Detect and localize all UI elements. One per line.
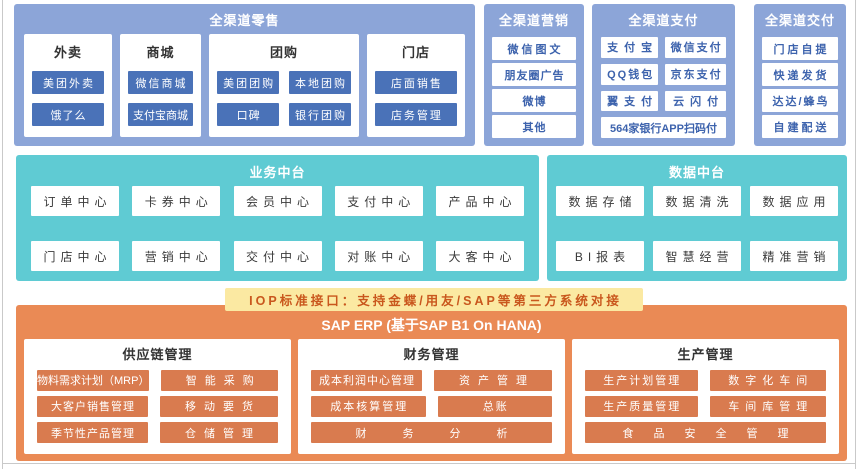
retail-column-takeout: 外卖 美团外卖 饿了么 xyxy=(24,34,112,137)
chip-key-account-sales: 大客户销售管理 xyxy=(37,396,148,417)
chip-koubei: 口碑 xyxy=(217,103,279,126)
chip-bank-groupbuy: 银行团购 xyxy=(289,103,351,126)
chip-weibo: 微博 xyxy=(492,89,576,112)
omnichannel-marketing-title: 全渠道营销 xyxy=(492,10,576,34)
chip-order-center: 订单中心 xyxy=(31,186,119,216)
omnichannel-delivery-title: 全渠道交付 xyxy=(762,10,838,34)
delivery-chips: 门店自提 快递发货 达达/蜂鸟 自建配送 xyxy=(762,37,838,138)
chip-cost-accounting: 成本核算管理 xyxy=(311,396,426,417)
data-platform-title: 数据中台 xyxy=(556,162,838,186)
chip-product-center: 产品中心 xyxy=(436,186,524,216)
groupbuy-chip-grid: 美团团购 本地团购 口碑 银行团购 xyxy=(217,71,351,126)
chip-marketing-center: 营销中心 xyxy=(132,241,220,271)
chip-express-shipping: 快递发货 xyxy=(762,63,838,86)
chip-precision-marketing: 精准营销 xyxy=(750,241,838,271)
chip-wechat-posts: 微信图文 xyxy=(492,37,576,60)
mall-title: 商城 xyxy=(147,42,175,61)
chip-alipay: 支付宝 xyxy=(601,37,658,58)
production-title: 生产管理 xyxy=(585,343,826,367)
chip-reconciliation-center: 对账中心 xyxy=(335,241,423,271)
supply-chain-row-2: 大客户销售管理 移动要货 xyxy=(37,393,278,419)
page-edge-bottom xyxy=(2,463,856,464)
chip-meituan-takeout: 美团外卖 xyxy=(32,71,104,94)
business-platform-title: 业务中台 xyxy=(31,162,524,186)
groupbuy-title: 团购 xyxy=(270,42,298,61)
chip-unionpay-quickpass: 云闪付 xyxy=(665,91,726,112)
store-title: 门店 xyxy=(402,42,430,61)
production-row-1: 生产计划管理 数字化车间 xyxy=(585,367,826,393)
chip-smart-procurement: 智能采购 xyxy=(161,370,278,391)
chip-jd-pay: 京东支付 xyxy=(665,64,726,85)
chip-data-storage: 数据存储 xyxy=(556,186,644,216)
chip-local-groupbuy: 本地团购 xyxy=(289,71,351,94)
payment-chips: 支付宝 微信支付 QQ钱包 京东支付 翼支付 云闪付 564家银行APP扫码付 xyxy=(601,37,726,138)
data-platform-rows: 数据存储 数据清洗 数据应用 BI报表 智慧经营 精准营销 xyxy=(556,186,838,271)
chip-workshop-inventory: 车间库管理 xyxy=(710,396,827,417)
retail-column-store: 门店 店面销售 店务管理 xyxy=(367,34,465,137)
page-edge-right xyxy=(855,0,856,469)
chip-food-safety: 食品安全管理 xyxy=(585,422,826,443)
section-sap-erp: SAP ERP (基于SAP B1 On HANA) 供应链管理 物料需求计划（… xyxy=(16,305,847,461)
iop-standard-interface-bar: IOP标准接口：支持金蝶/用友/SAP等第三方系统对接 xyxy=(225,288,643,311)
production-row-2: 生产质量管理 车间库管理 xyxy=(585,393,826,419)
page-edge-left xyxy=(2,0,3,469)
chip-coupon-center: 卡券中心 xyxy=(132,186,220,216)
chip-member-center: 会员中心 xyxy=(234,186,322,216)
supply-chain-row-3: 季节性产品管理 仓储管理 xyxy=(37,420,278,446)
finance-row-3: 财务分析 xyxy=(311,420,552,446)
erp-panels: 供应链管理 物料需求计划（MRP） 智能采购 大客户销售管理 移动要货 季节性产… xyxy=(24,339,839,454)
chip-store-center: 门店中心 xyxy=(31,241,119,271)
chip-smart-operation: 智慧经营 xyxy=(653,241,741,271)
chip-storefront-sales: 店面销售 xyxy=(375,71,457,94)
chip-production-planning: 生产计划管理 xyxy=(585,370,698,391)
business-row-1: 订单中心 卡券中心 会员中心 支付中心 产品中心 xyxy=(31,186,524,216)
chip-dada-fengniao: 达达/蜂鸟 xyxy=(762,89,838,112)
supply-chain-row-1: 物料需求计划（MRP） 智能采购 xyxy=(37,367,278,393)
chip-warehouse-management: 仓储管理 xyxy=(160,422,278,443)
panel-finance: 财务管理 成本利润中心管理 资产管理 成本核算管理 总账 财务分析 xyxy=(298,339,565,454)
omnichannel-payment-title: 全渠道支付 xyxy=(601,10,726,34)
chip-data-cleaning: 数据清洗 xyxy=(653,186,741,216)
panel-production: 生产管理 生产计划管理 数字化车间 生产质量管理 车间库管理 食品安全管理 xyxy=(572,339,839,454)
chip-financial-analysis: 财务分析 xyxy=(311,422,552,443)
chip-qq-wallet: QQ钱包 xyxy=(601,64,658,85)
omnichannel-retail-title: 全渠道零售 xyxy=(24,10,465,34)
chip-own-delivery: 自建配送 xyxy=(762,115,838,138)
business-platform-rows: 订单中心 卡券中心 会员中心 支付中心 产品中心 门店中心 营销中心 交付中心 … xyxy=(31,186,524,271)
finance-row-1: 成本利润中心管理 资产管理 xyxy=(311,367,552,393)
chip-wechat-pay: 微信支付 xyxy=(665,37,726,58)
chip-key-account-center: 大客中心 xyxy=(436,241,524,271)
sap-erp-title: SAP ERP (基于SAP B1 On HANA) xyxy=(24,315,839,339)
chip-cost-profit-center: 成本利润中心管理 xyxy=(311,370,422,391)
chip-production-quality: 生产质量管理 xyxy=(585,396,698,417)
chip-bestpay: 翼支付 xyxy=(601,91,658,112)
retail-column-mall: 商城 微信商城 支付宝商城 xyxy=(120,34,201,137)
section-business-middle-platform: 业务中台 订单中心 卡券中心 会员中心 支付中心 产品中心 门店中心 营销中心 … xyxy=(16,155,539,281)
section-omnichannel-payment: 全渠道支付 支付宝 微信支付 QQ钱包 京东支付 翼支付 云闪付 564家银行A… xyxy=(592,4,735,146)
chip-general-ledger: 总账 xyxy=(438,396,553,417)
section-data-middle-platform: 数据中台 数据存储 数据清洗 数据应用 BI报表 智慧经营 精准营销 xyxy=(547,155,847,281)
production-row-3: 食品安全管理 xyxy=(585,420,826,446)
section-omnichannel-marketing: 全渠道营销 微信图文 朋友圈广告 微博 其他 xyxy=(484,4,584,146)
chip-data-application: 数据应用 xyxy=(750,186,838,216)
chip-seasonal-product: 季节性产品管理 xyxy=(37,422,148,443)
chip-mobile-ordering: 移动要货 xyxy=(160,396,278,417)
chip-delivery-center: 交付中心 xyxy=(234,241,322,271)
chip-bi-reports: BI报表 xyxy=(556,241,644,271)
chip-payment-center: 支付中心 xyxy=(335,186,423,216)
chip-alipay-mall: 支付宝商城 xyxy=(128,103,193,126)
chip-mrp: 物料需求计划（MRP） xyxy=(37,370,149,391)
section-omnichannel-delivery: 全渠道交付 门店自提 快递发货 达达/蜂鸟 自建配送 xyxy=(754,4,846,146)
chip-other: 其他 xyxy=(492,115,576,138)
chip-asset-management: 资产管理 xyxy=(434,370,552,391)
chip-moments-ads: 朋友圈广告 xyxy=(492,63,576,86)
chip-store-pickup: 门店自提 xyxy=(762,37,838,60)
data-row-2: BI报表 智慧经营 精准营销 xyxy=(556,241,838,271)
chip-meituan-groupbuy: 美团团购 xyxy=(217,71,279,94)
chip-store-management: 店务管理 xyxy=(375,103,457,126)
supply-chain-title: 供应链管理 xyxy=(37,343,278,367)
data-row-1: 数据存储 数据清洗 数据应用 xyxy=(556,186,838,216)
chip-eleme: 饿了么 xyxy=(32,103,104,126)
section-omnichannel-retail: 全渠道零售 外卖 美团外卖 饿了么 商城 微信商城 支付宝商城 团购 美团团购 … xyxy=(14,4,475,146)
panel-supply-chain: 供应链管理 物料需求计划（MRP） 智能采购 大客户销售管理 移动要货 季节性产… xyxy=(24,339,291,454)
finance-row-2: 成本核算管理 总账 xyxy=(311,393,552,419)
takeout-title: 外卖 xyxy=(54,42,82,61)
retail-columns: 外卖 美团外卖 饿了么 商城 微信商城 支付宝商城 团购 美团团购 本地团购 口… xyxy=(24,34,465,137)
architecture-diagram: 全渠道零售 外卖 美团外卖 饿了么 商城 微信商城 支付宝商城 团购 美团团购 … xyxy=(0,0,867,469)
marketing-chips: 微信图文 朋友圈广告 微博 其他 xyxy=(492,37,576,138)
chip-digital-workshop: 数字化车间 xyxy=(710,370,827,391)
retail-column-groupbuy: 团购 美团团购 本地团购 口碑 银行团购 xyxy=(209,34,359,137)
chip-wechat-mall: 微信商城 xyxy=(128,71,193,94)
business-row-2: 门店中心 营销中心 交付中心 对账中心 大客中心 xyxy=(31,241,524,271)
finance-title: 财务管理 xyxy=(311,343,552,367)
chip-bank-app-scan-pay: 564家银行APP扫码付 xyxy=(601,117,726,138)
